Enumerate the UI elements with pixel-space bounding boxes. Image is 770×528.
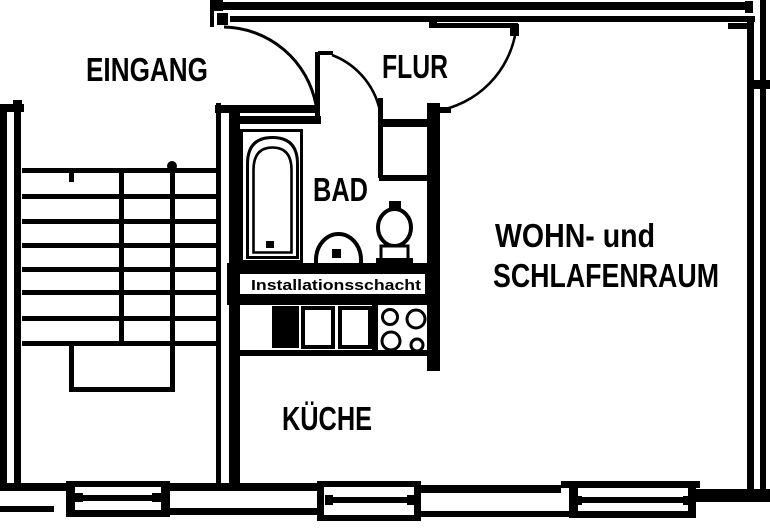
svg-text:WOHN- und: WOHN- und: [495, 217, 655, 254]
svg-text:BAD: BAD: [313, 171, 368, 208]
svg-text:KÜCHE: KÜCHE: [282, 400, 372, 437]
svg-text:Installationsschacht: Installationsschacht: [251, 277, 421, 294]
svg-text:FLUR: FLUR: [382, 48, 448, 85]
svg-text:EINGANG: EINGANG: [86, 51, 208, 88]
svg-text:SCHLAFENRAUM: SCHLAFENRAUM: [493, 257, 719, 294]
